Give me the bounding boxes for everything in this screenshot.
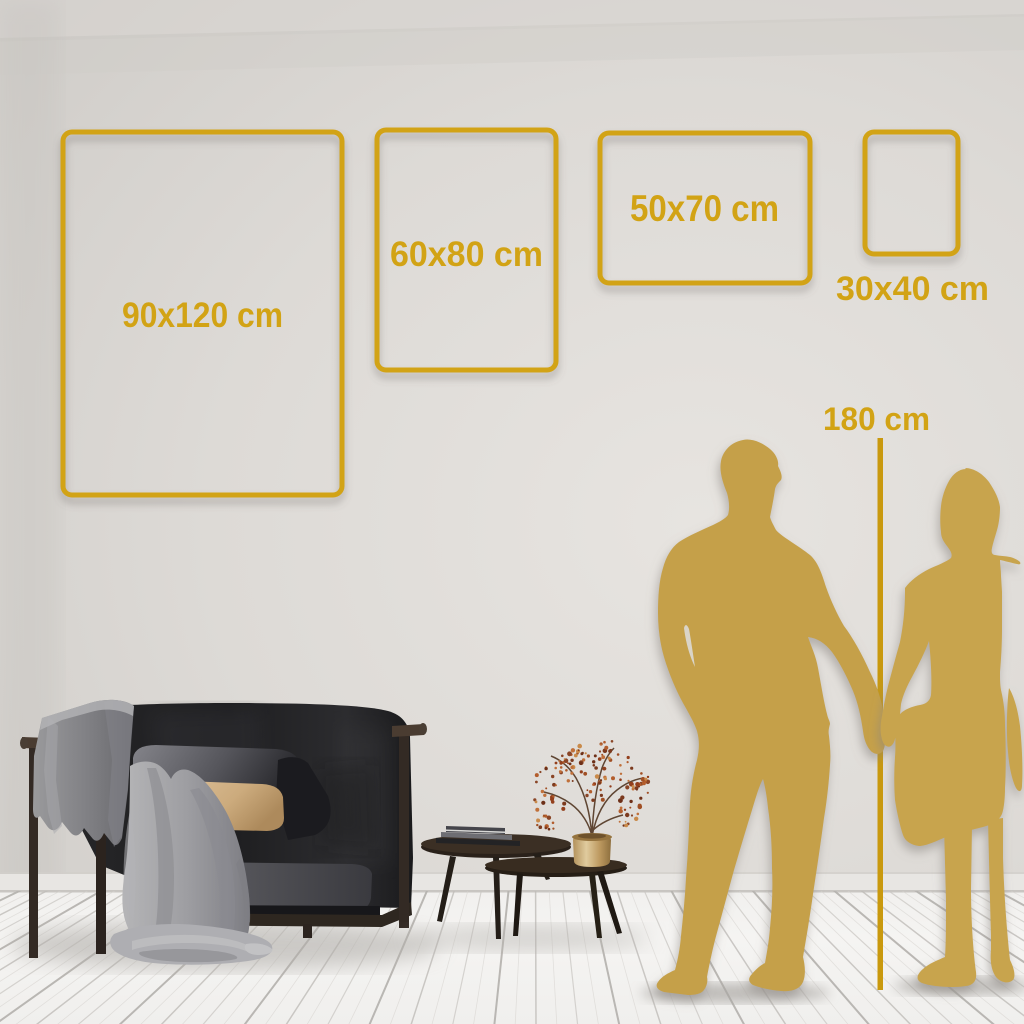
svg-text:180 cm: 180 cm — [823, 401, 930, 437]
svg-text:90x120 cm: 90x120 cm — [122, 296, 283, 335]
svg-text:60x80 cm: 60x80 cm — [390, 235, 543, 274]
svg-text:30x40 cm: 30x40 cm — [836, 270, 989, 308]
svg-text:50x70 cm: 50x70 cm — [630, 188, 779, 229]
